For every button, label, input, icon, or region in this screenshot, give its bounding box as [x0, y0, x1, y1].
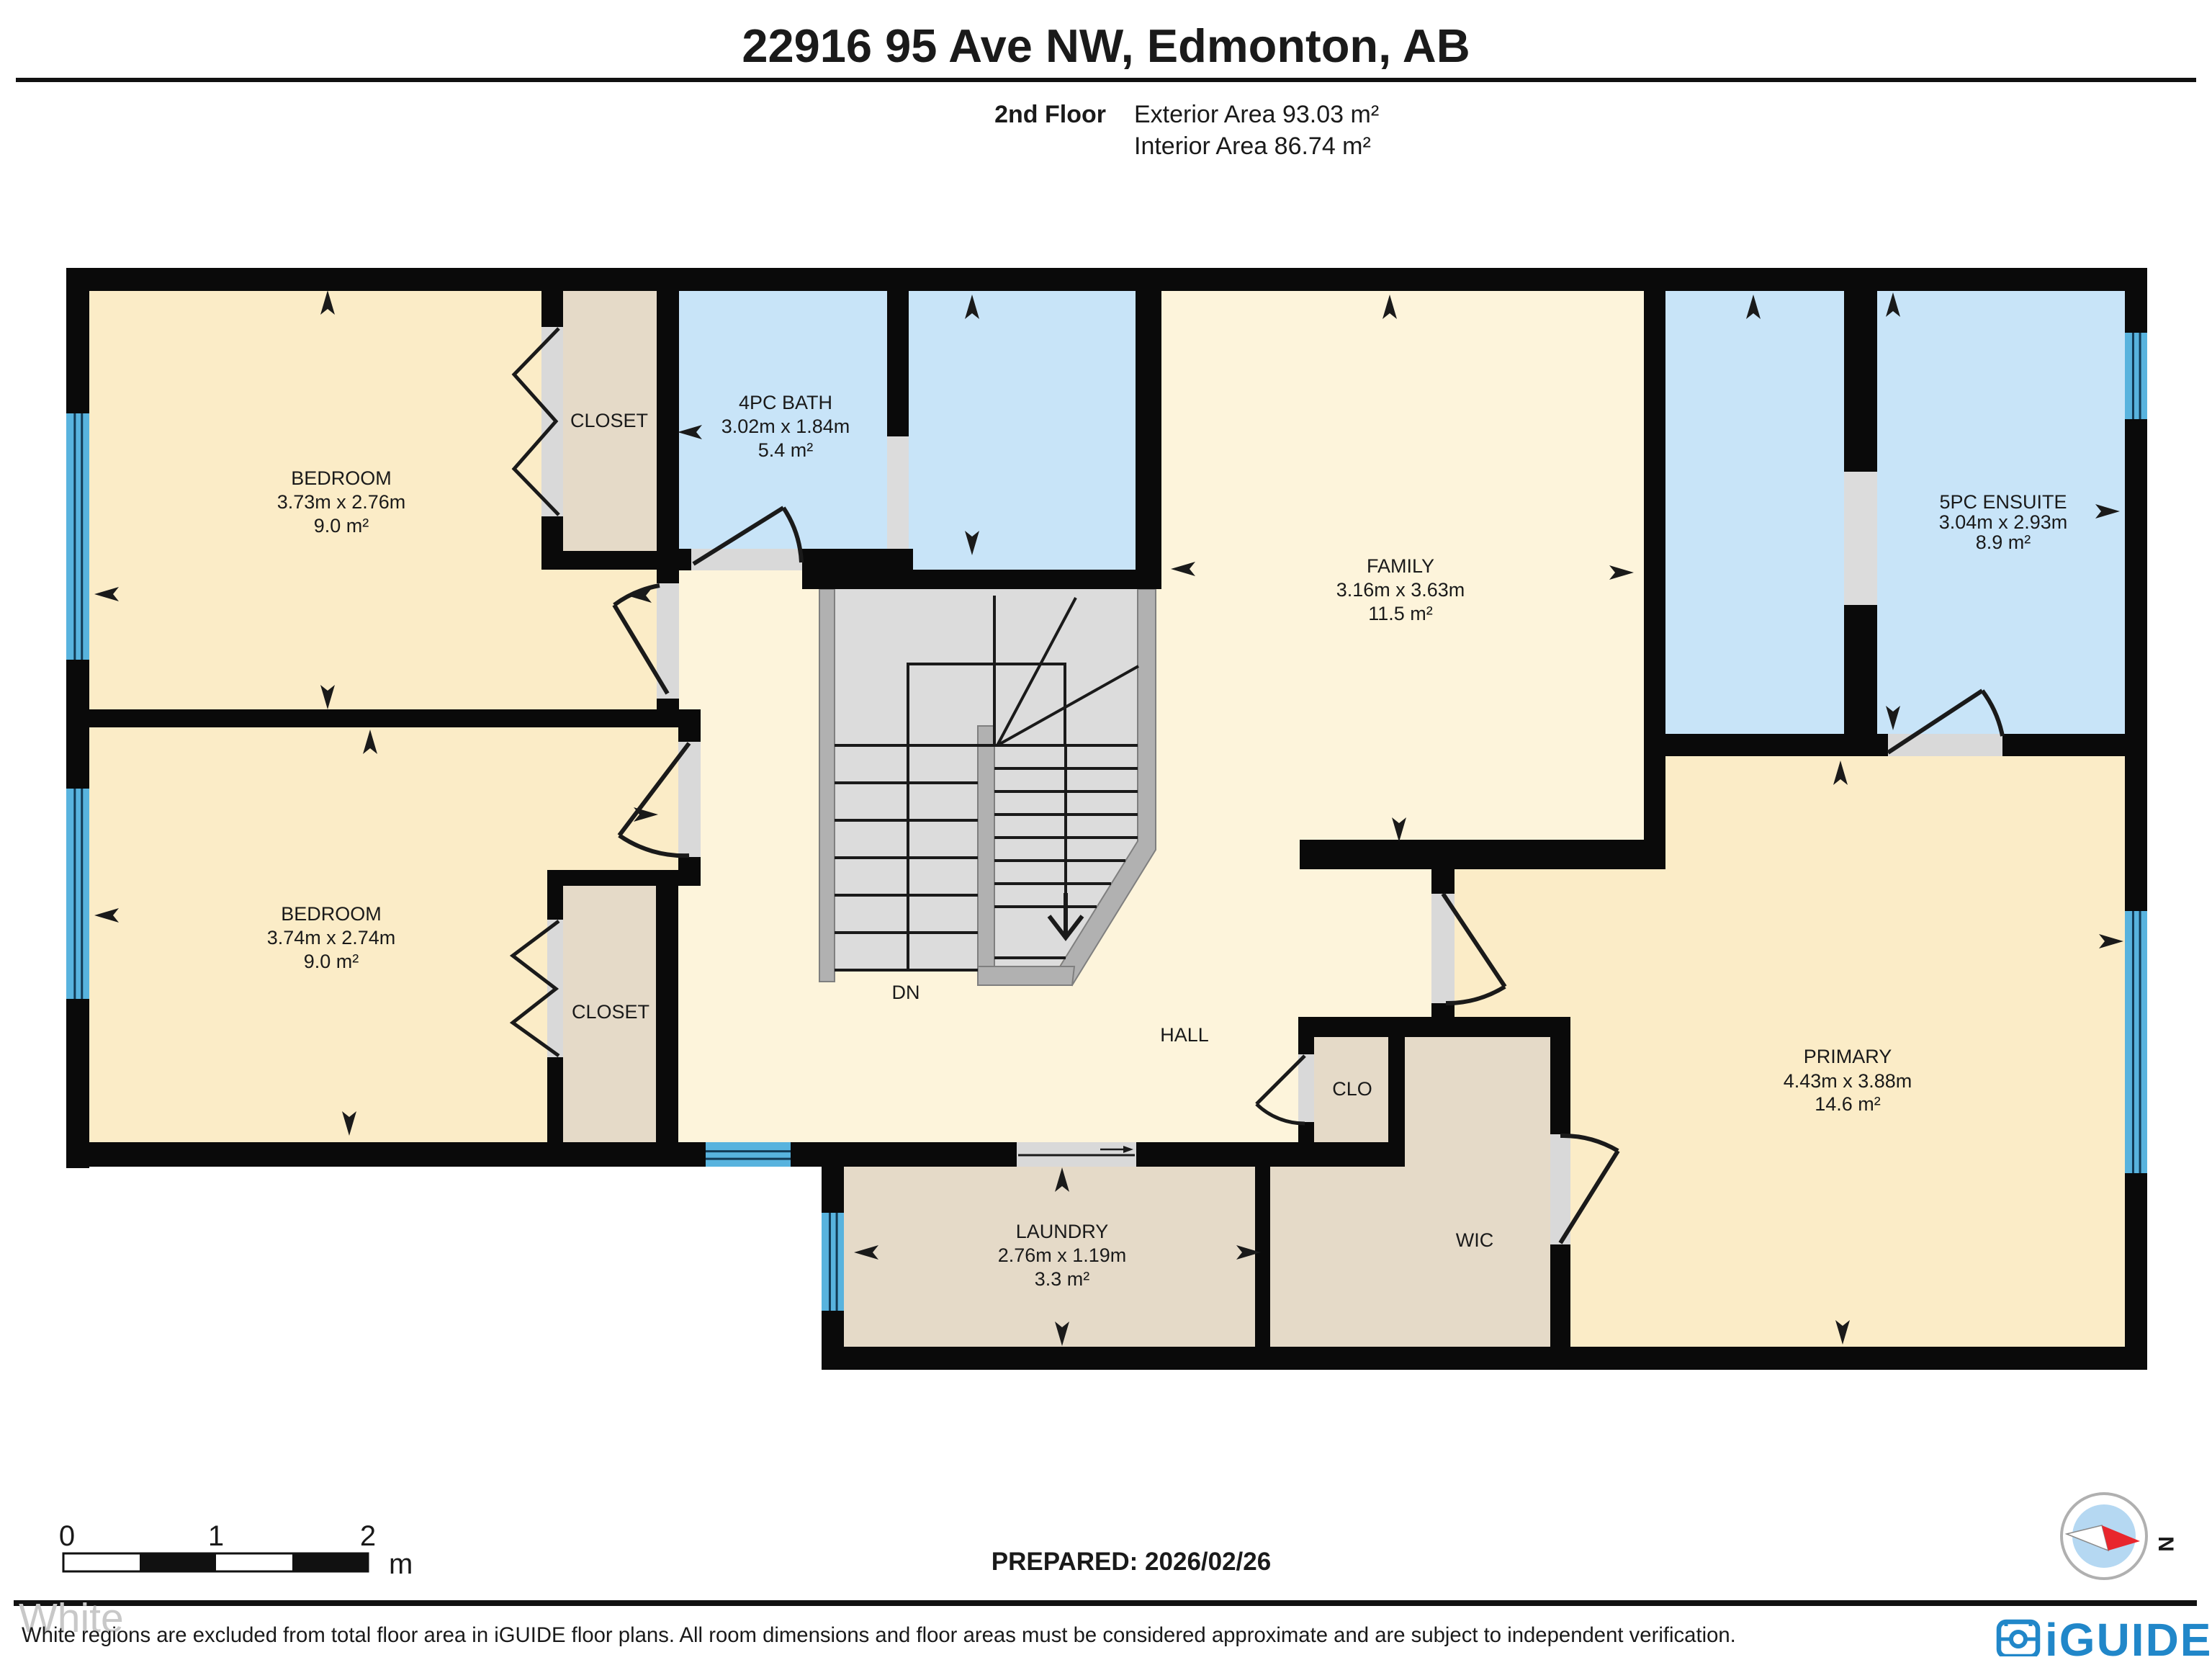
- svg-text:Interior Area 86.74 m²: Interior Area 86.74 m²: [1134, 133, 1371, 160]
- svg-text:8.9 m²: 8.9 m²: [1976, 531, 2031, 553]
- svg-text:Exterior Area 93.03 m²: Exterior Area 93.03 m²: [1134, 101, 1379, 128]
- svg-text:2nd Floor: 2nd Floor: [994, 101, 1106, 128]
- svg-text:5.4 m²: 5.4 m²: [758, 439, 814, 461]
- svg-text:DN: DN: [892, 982, 920, 1003]
- svg-text:LAUNDRY: LAUNDRY: [1016, 1221, 1109, 1242]
- svg-text:3.04m x 2.93m: 3.04m x 2.93m: [1939, 511, 2068, 533]
- svg-text:CLOSET: CLOSET: [572, 1001, 649, 1023]
- svg-text:CLOSET: CLOSET: [570, 410, 648, 431]
- svg-text:5PC ENSUITE: 5PC ENSUITE: [1939, 491, 2067, 513]
- svg-text:22916 95 Ave NW, Edmonton, AB: 22916 95 Ave NW, Edmonton, AB: [742, 19, 1470, 72]
- svg-text:3.74m x 2.74m: 3.74m x 2.74m: [267, 927, 396, 948]
- svg-text:3.3 m²: 3.3 m²: [1035, 1268, 1090, 1290]
- svg-text:1: 1: [208, 1520, 224, 1552]
- svg-text:3.02m x 1.84m: 3.02m x 1.84m: [721, 416, 850, 437]
- svg-text:White regions are excluded fro: White regions are excluded from total fl…: [22, 1623, 1736, 1647]
- svg-text:2: 2: [360, 1520, 376, 1552]
- svg-text:11.5 m²: 11.5 m²: [1368, 603, 1433, 624]
- svg-text:9.0 m²: 9.0 m²: [314, 515, 369, 537]
- svg-text:FAMILY: FAMILY: [1367, 555, 1434, 577]
- svg-text:m: m: [389, 1548, 413, 1580]
- svg-text:4.43m x 3.88m: 4.43m x 3.88m: [1784, 1070, 1912, 1092]
- svg-text:BEDROOM: BEDROOM: [291, 467, 392, 489]
- svg-text:CLO: CLO: [1332, 1078, 1372, 1100]
- svg-text:0: 0: [59, 1520, 75, 1552]
- svg-text:3.73m x 2.76m: 3.73m x 2.76m: [277, 491, 406, 513]
- svg-text:14.6 m²: 14.6 m²: [1815, 1093, 1881, 1115]
- svg-text:9.0 m²: 9.0 m²: [304, 951, 359, 972]
- svg-text:BEDROOM: BEDROOM: [281, 903, 382, 925]
- svg-text:3.16m x 3.63m: 3.16m x 3.63m: [1336, 579, 1465, 601]
- svg-text:N: N: [2154, 1536, 2177, 1552]
- svg-text:2.76m x 1.19m: 2.76m x 1.19m: [998, 1244, 1127, 1266]
- svg-text:HALL: HALL: [1160, 1024, 1209, 1046]
- svg-text:4PC BATH: 4PC BATH: [739, 392, 832, 413]
- svg-text:iGUIDE: iGUIDE: [2045, 1614, 2212, 1656]
- svg-text:WIC: WIC: [1456, 1229, 1493, 1251]
- svg-text:PRIMARY: PRIMARY: [1804, 1046, 1892, 1067]
- svg-text:PREPARED: 2026/02/26: PREPARED: 2026/02/26: [992, 1548, 1271, 1576]
